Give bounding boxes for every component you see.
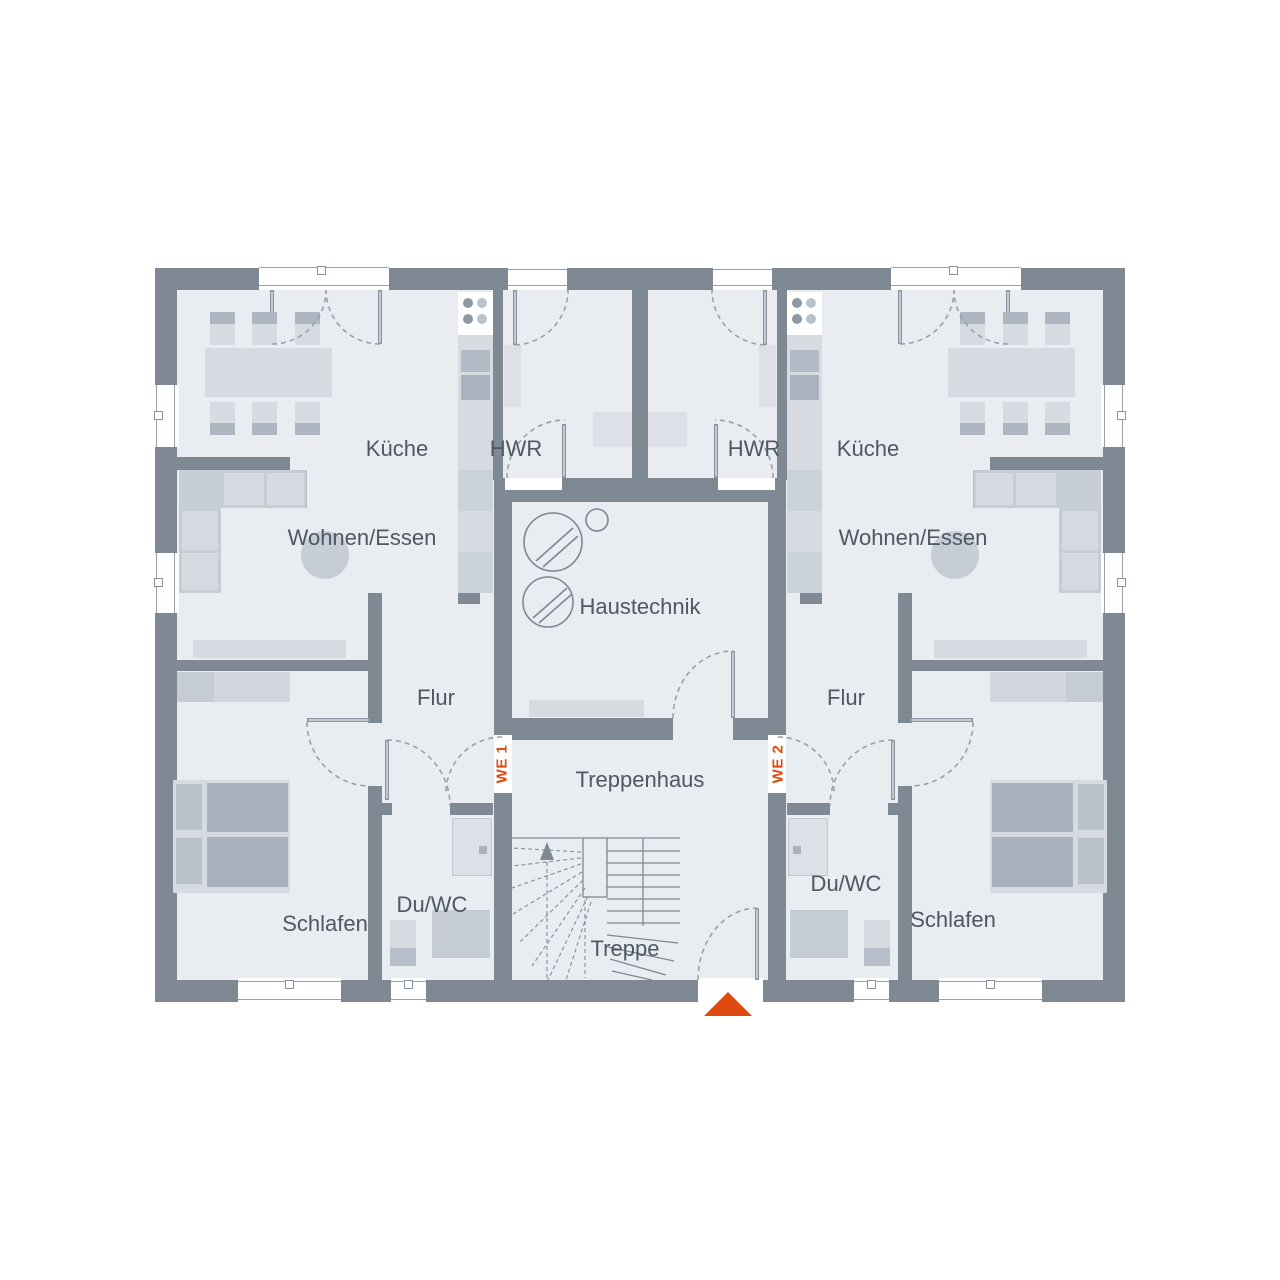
room-label-hwr-we1: HWR [490,438,543,460]
unit-label-we1: WE 1 [494,745,511,784]
room-label-treppenhaus: Treppenhaus [576,769,705,791]
room-label-schlafen-we2: Schlafen [910,909,996,931]
room-label-duwc-we2: Du/WC [811,873,882,895]
room-label-haustechnik: Haustechnik [579,596,700,618]
stair-upper-flight-dashed [512,848,591,980]
stair-direction-arrow-icon [540,842,554,860]
room-label-wohnen-essen-we1: Wohnen/Essen [288,527,437,549]
room-label-kueche-we2: Küche [837,438,899,460]
entrance-marker-icon [704,992,752,1016]
room-label-kueche-we1: Küche [366,438,428,460]
room-label-hwr-we2: HWR [728,438,781,460]
door-swing-arc [272,290,1008,980]
room-label-schlafen-we1: Schlafen [282,913,368,935]
floor-plan: Küche HWR Wohnen/Essen Flur Du/WC Schlaf… [0,0,1280,1280]
room-label-treppe: Treppe [591,938,660,960]
room-label-duwc-we1: Du/WC [397,894,468,916]
plan-linework [0,0,1280,1280]
room-label-flur-we1: Flur [417,687,455,709]
room-label-flur-we2: Flur [827,687,865,709]
room-label-wohnen-essen-we2: Wohnen/Essen [839,527,988,549]
unit-label-we2: WE 2 [770,745,787,784]
